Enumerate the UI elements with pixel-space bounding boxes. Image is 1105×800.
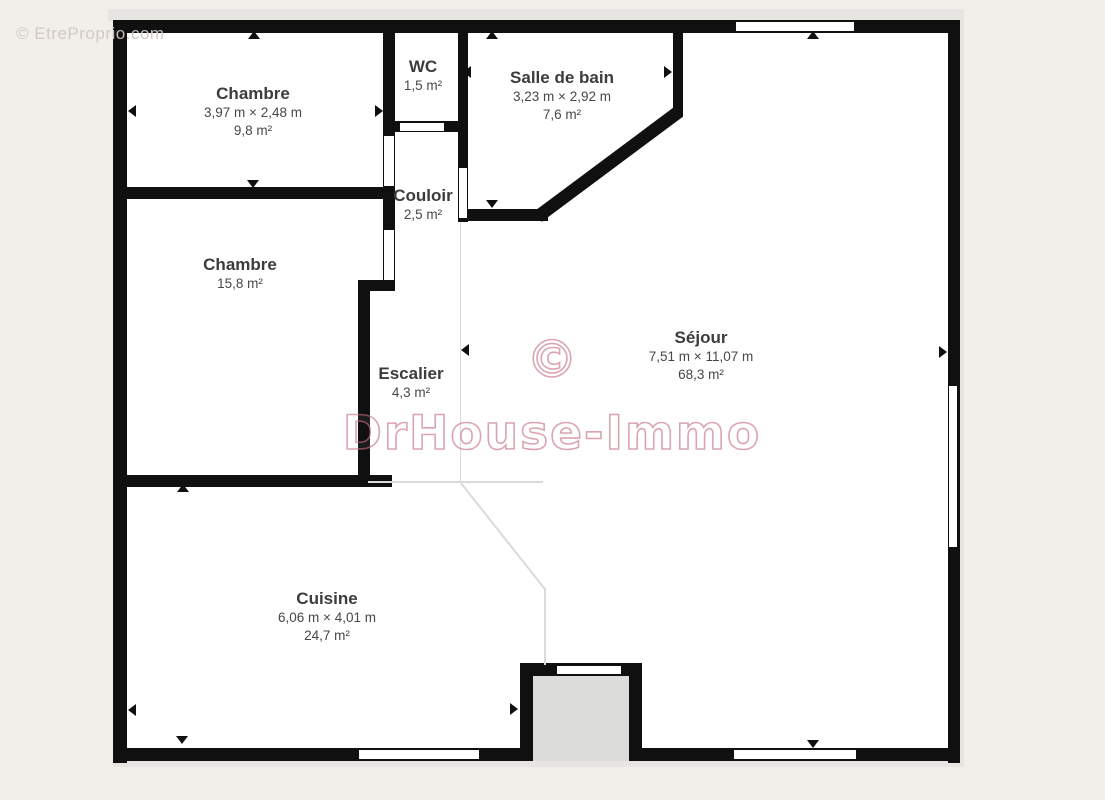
opening-arrow-icon [375, 105, 383, 117]
wall-sdb-right [673, 33, 683, 117]
window-top [735, 21, 855, 32]
opening-arrow-icon [807, 31, 819, 39]
copyright-symbol-watermark: © [526, 330, 578, 390]
room-area: 4,3 m² [378, 384, 443, 402]
opening-arrow-icon [247, 180, 259, 188]
room-label-salle-de-bain: Salle de bain 3,23 m × 2,92 m 7,6 m² [510, 68, 614, 124]
room-area: 7,6 m² [510, 106, 614, 124]
room-label-sejour: Séjour 7,51 m × 11,07 m 68,3 m² [649, 328, 753, 384]
opening-arrow-icon [510, 703, 518, 715]
room-area: 24,7 m² [278, 627, 376, 645]
separator-cuisine-right [544, 588, 546, 665]
corner-watermark: © EtreProprio.com [16, 24, 165, 44]
window-right [948, 385, 958, 548]
door-chambre1 [384, 136, 394, 186]
room-label-couloir: Couloir 2,5 m² [393, 186, 453, 224]
room-label-chambre-1: Chambre 3,97 m × 2,48 m 9,8 m² [204, 84, 302, 140]
door-wc [399, 122, 445, 132]
room-name: Couloir [393, 186, 453, 206]
opening-arrow-icon [486, 200, 498, 208]
room-label-wc: WC 1,5 m² [404, 57, 442, 95]
window-bottom-right [733, 749, 857, 760]
room-dimensions: 3,23 m × 2,92 m [510, 88, 614, 106]
opening-arrow-icon [248, 31, 260, 39]
room-label-escalier: Escalier 4,3 m² [378, 364, 443, 402]
room-area: 9,8 m² [204, 122, 302, 140]
entrance-door [556, 665, 622, 675]
room-name: WC [404, 57, 442, 77]
door-couloir-sdb [459, 168, 467, 218]
room-label-chambre-2: Chambre 15,8 m² [203, 255, 277, 293]
wall-porch-left [520, 663, 533, 761]
room-name: Cuisine [278, 589, 376, 609]
opening-arrow-icon [463, 66, 471, 78]
door-chambre2 [384, 230, 394, 280]
opening-arrow-icon [128, 105, 136, 117]
opening-arrow-icon [177, 484, 189, 492]
opening-arrow-icon [461, 344, 469, 356]
window-bottom-left [358, 749, 480, 760]
room-name: Chambre [204, 84, 302, 104]
brand-watermark: DrHouse-Immo [343, 406, 761, 461]
room-name: Escalier [378, 364, 443, 384]
room-dimensions: 6,06 m × 4,01 m [278, 609, 376, 627]
room-name: Salle de bain [510, 68, 614, 88]
opening-arrow-icon [486, 31, 498, 39]
plan-right-shadow [960, 14, 964, 766]
opening-arrow-icon [128, 704, 136, 716]
entrance-porch [533, 676, 629, 761]
room-area: 68,3 m² [649, 366, 753, 384]
interior-floor [127, 33, 948, 748]
room-dimensions: 7,51 m × 11,07 m [649, 348, 753, 366]
opening-arrow-icon [807, 740, 819, 748]
room-name: Chambre [203, 255, 277, 275]
room-dimensions: 3,97 m × 2,48 m [204, 104, 302, 122]
room-area: 2,5 m² [393, 206, 453, 224]
plan-bottom-shadow [113, 761, 964, 767]
wall-outer-left [113, 20, 127, 763]
opening-arrow-icon [664, 66, 672, 78]
room-label-cuisine: Cuisine 6,06 m × 4,01 m 24,7 m² [278, 589, 376, 645]
floor-plan-page: { "watermarks": { "corner": "© EtrePropr… [0, 0, 1105, 800]
room-area: 15,8 m² [203, 275, 277, 293]
wall-chambre2-bottom [113, 475, 392, 487]
separator-cuisine-top [368, 481, 543, 483]
wall-porch-right [629, 663, 642, 761]
opening-arrow-icon [176, 736, 188, 744]
opening-arrow-icon [939, 346, 947, 358]
wall-chambre1-bottom [113, 187, 395, 199]
room-area: 1,5 m² [404, 77, 442, 95]
room-name: Séjour [649, 328, 753, 348]
